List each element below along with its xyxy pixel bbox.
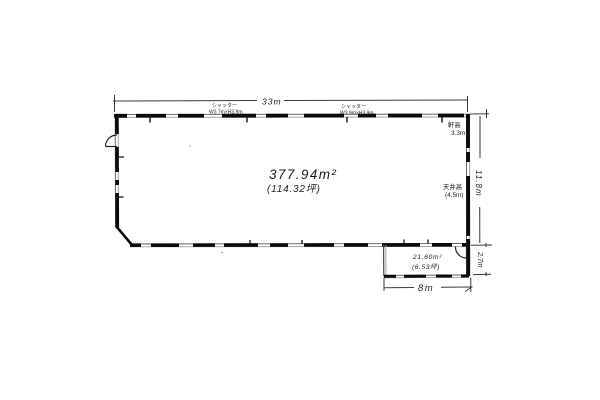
svg-text:2.7m: 2.7m xyxy=(476,251,483,268)
svg-text:11.8m: 11.8m xyxy=(474,170,483,197)
svg-text:軒高: 軒高 xyxy=(448,120,461,129)
svg-text:(6.53坪): (6.53坪) xyxy=(412,263,440,271)
svg-text:8m: 8m xyxy=(418,283,434,294)
svg-text:(4.5m): (4.5m) xyxy=(445,192,463,199)
svg-text:シャッター: シャッター xyxy=(212,102,237,109)
svg-text:シャッター: シャッター xyxy=(341,103,366,110)
svg-text:33m: 33m xyxy=(262,97,282,107)
svg-text:(114.32坪): (114.32坪) xyxy=(267,183,321,195)
svg-text:377.94m²: 377.94m² xyxy=(269,167,337,182)
svg-text:3.3m: 3.3m xyxy=(451,130,465,137)
svg-text:21.60m²: 21.60m² xyxy=(412,254,442,261)
svg-text:天井高: 天井高 xyxy=(443,182,462,191)
